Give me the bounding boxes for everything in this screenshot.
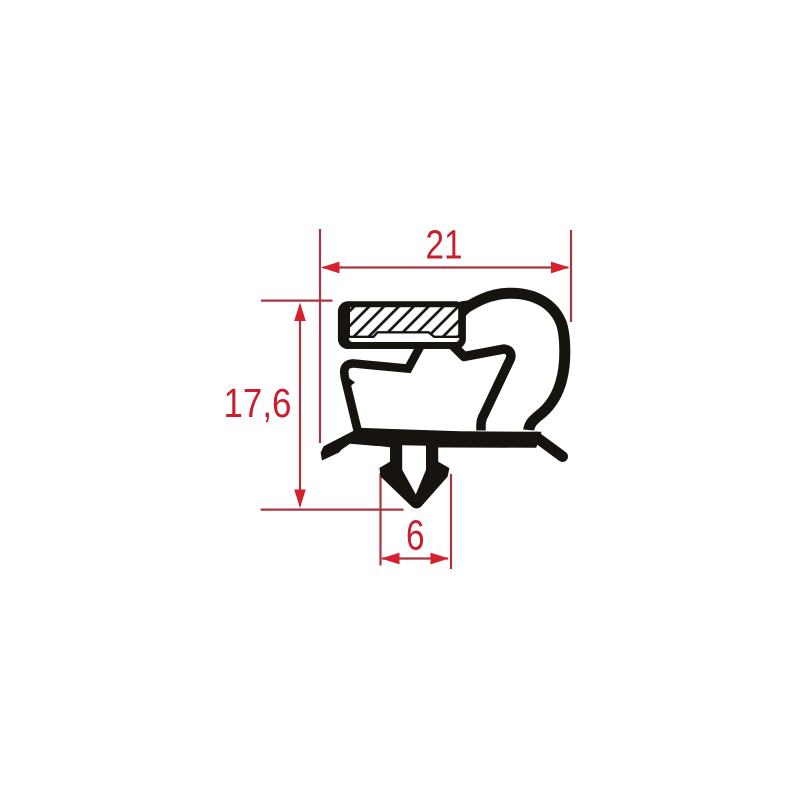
- svg-text:6: 6: [406, 511, 425, 559]
- svg-text:21: 21: [426, 221, 463, 267]
- svg-text:17,6: 17,6: [224, 380, 292, 426]
